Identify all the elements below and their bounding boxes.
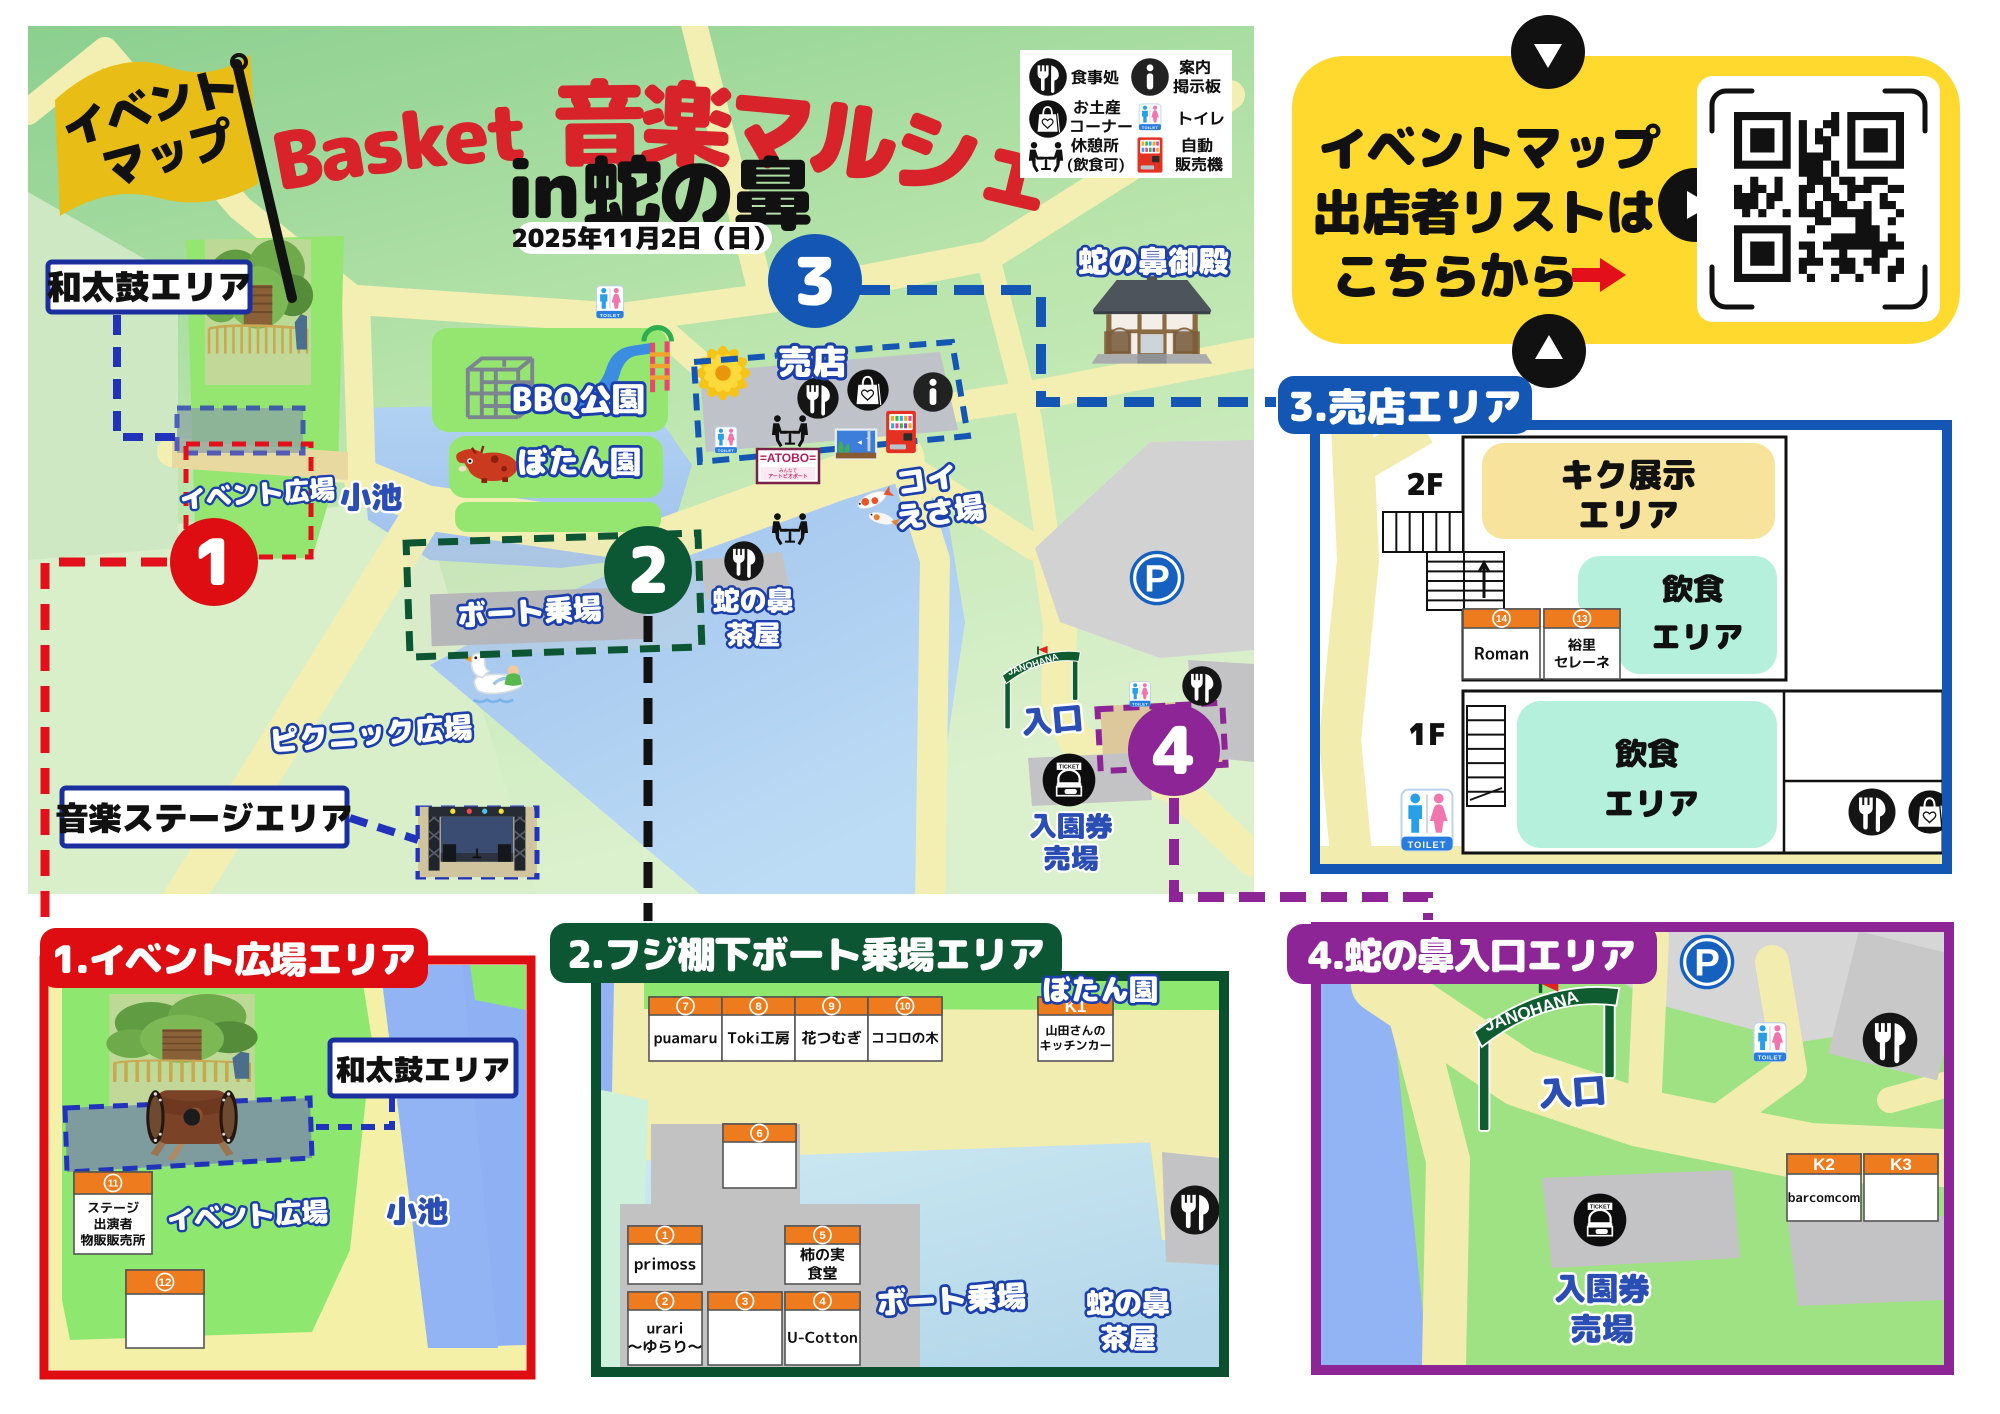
svg-text:9: 9 [828,1001,834,1013]
svg-text:1: 1 [662,1230,669,1242]
svg-text:10: 10 [899,1002,911,1013]
svg-text:13: 13 [1576,614,1588,625]
svg-text:7: 7 [682,1001,688,1013]
svg-text:3: 3 [742,1296,748,1308]
svg-text:12: 12 [159,1277,172,1289]
svg-text:11: 11 [108,1179,119,1190]
svg-text:8: 8 [755,1001,761,1013]
svg-text:4: 4 [819,1296,826,1308]
svg-text:K3: K3 [1890,1155,1912,1174]
svg-text:5: 5 [819,1230,826,1242]
svg-text:2: 2 [662,1296,668,1308]
svg-text:6: 6 [756,1128,762,1140]
svg-text:K2: K2 [1813,1155,1835,1174]
svg-text:14: 14 [1496,614,1508,625]
